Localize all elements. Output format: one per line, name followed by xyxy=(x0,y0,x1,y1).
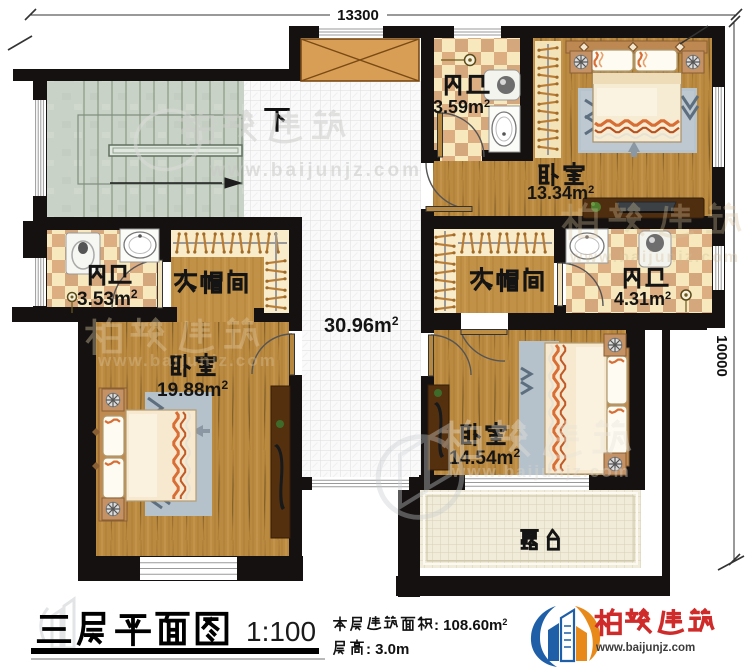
svg-text:13300: 13300 xyxy=(337,7,379,24)
svg-text:www.baijunjz.com: www.baijunjz.com xyxy=(569,249,740,266)
svg-text:19.88m2: 19.88m2 xyxy=(157,378,228,401)
svg-text:www.baijunjz.com: www.baijunjz.com xyxy=(209,160,422,181)
svg-text:www.baijunjz.com: www.baijunjz.com xyxy=(595,642,695,654)
svg-text:www.baijunjz.com: www.baijunjz.com xyxy=(97,351,277,370)
svg-text:10000: 10000 xyxy=(713,335,730,377)
svg-text:www.baijunjz.com: www.baijunjz.com xyxy=(451,462,631,481)
svg-text:1:100: 1:100 xyxy=(246,616,316,647)
svg-text:4.31m2: 4.31m2 xyxy=(614,289,671,309)
svg-text:3.59m2: 3.59m2 xyxy=(433,97,490,117)
svg-text:: 3.0m: : 3.0m xyxy=(366,641,409,658)
svg-text:30.96m2: 30.96m2 xyxy=(324,314,399,337)
svg-text:3.53m2: 3.53m2 xyxy=(77,287,138,310)
svg-text:: 108.60m2: : 108.60m2 xyxy=(434,617,507,634)
svg-text:13.34m2: 13.34m2 xyxy=(527,183,594,203)
